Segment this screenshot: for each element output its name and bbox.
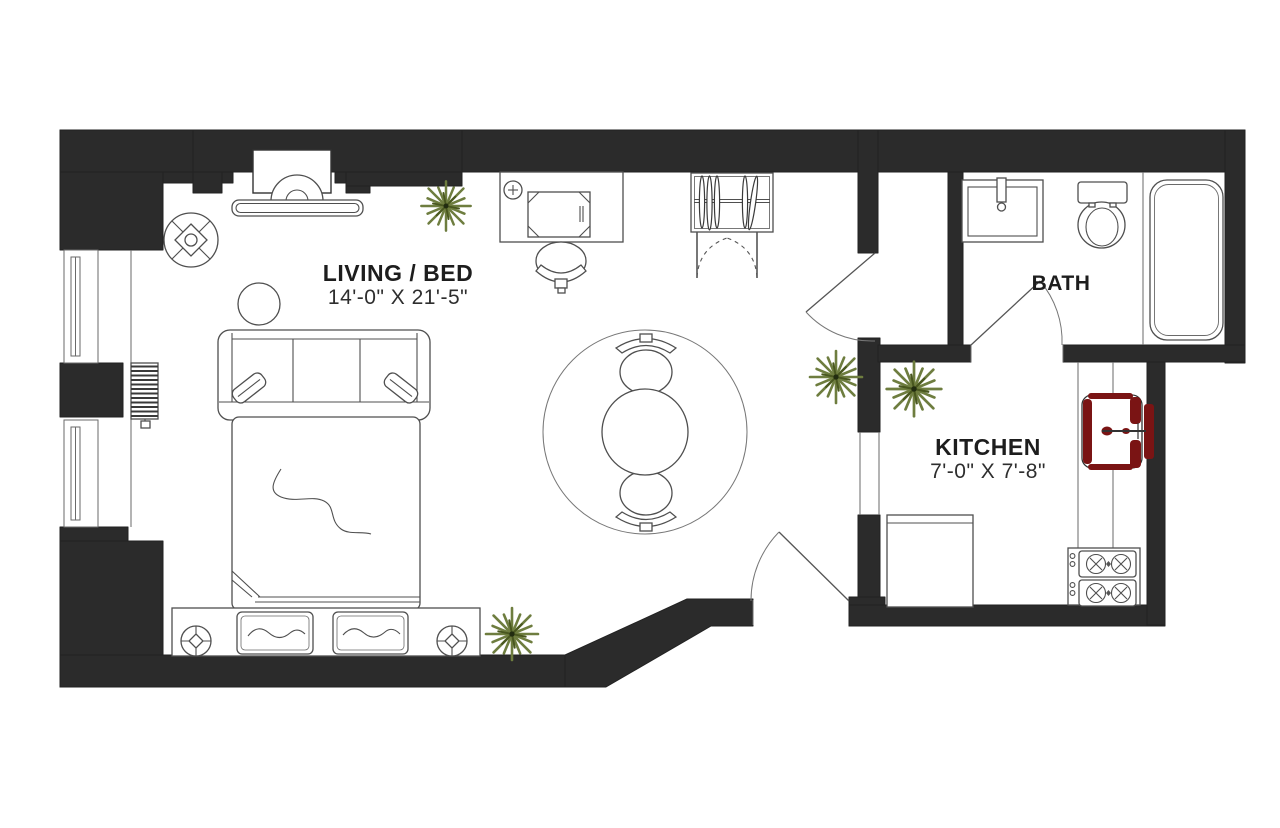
- dining-chair-bottom: [616, 471, 676, 531]
- desk-chair: [536, 242, 586, 293]
- base-cabinet: [887, 515, 973, 607]
- wall-kitchen-bottom: [849, 605, 1165, 626]
- interior-door: [806, 253, 875, 341]
- window-lower: [64, 420, 98, 527]
- bed-pillow-left: [237, 612, 313, 654]
- wall-top-right: [462, 130, 1245, 172]
- wall-bath-left: [948, 172, 963, 345]
- bathtub: [1143, 172, 1223, 345]
- burners-top: [1079, 551, 1136, 577]
- plant-bottom: [486, 608, 538, 660]
- headboard-platform: [172, 608, 480, 656]
- vanity-sink: [962, 178, 1043, 242]
- radiator: [131, 363, 158, 428]
- laptop: [528, 192, 590, 237]
- plant-living-corner: [810, 351, 862, 403]
- wall-bottom: [60, 655, 565, 687]
- burners-bottom: [1079, 580, 1136, 606]
- desk-lamp: [504, 181, 522, 199]
- plant-kitchen: [887, 362, 942, 417]
- closet: [691, 173, 773, 278]
- wall-kitchen-right: [1147, 348, 1165, 625]
- dining-chair-top: [616, 334, 676, 394]
- living-bed-dimensions: 14'-0" X 21'-5": [328, 286, 468, 309]
- plant-top: [421, 181, 470, 230]
- floor-plan-page: LIVING / BED 14'-0" X 21'-5" BATH KITCHE…: [0, 0, 1280, 828]
- bed: [172, 417, 480, 656]
- window-upper: [64, 250, 98, 363]
- side-table: [238, 283, 280, 325]
- sofa: [218, 330, 430, 420]
- toilet: [1078, 182, 1127, 248]
- hearth: [232, 200, 363, 216]
- kitchen-dimensions: 7'-0" X 7'-8": [930, 460, 1046, 483]
- floor-plan: LIVING / BED 14'-0" X 21'-5" BATH KITCHE…: [0, 0, 1280, 828]
- range-stove: [1068, 548, 1140, 606]
- bath-label: BATH: [1032, 272, 1091, 295]
- round-table: [602, 389, 688, 475]
- desk: [500, 172, 623, 242]
- wall-right: [1225, 130, 1245, 363]
- wall-left-pier: [60, 363, 123, 417]
- wall-bottom-diagonal: [565, 599, 753, 687]
- bifold-swing: [697, 238, 757, 277]
- bed-pillow-right: [333, 612, 408, 654]
- kitchen-label: KITCHEN: [935, 434, 1041, 460]
- kitchen-sink: [1082, 393, 1154, 470]
- bedside-table-left: [181, 626, 211, 656]
- armchair: [164, 213, 218, 267]
- bedside-table-right: [437, 626, 467, 656]
- entry-door: [751, 532, 849, 601]
- living-bed-label: LIVING / BED: [323, 260, 473, 286]
